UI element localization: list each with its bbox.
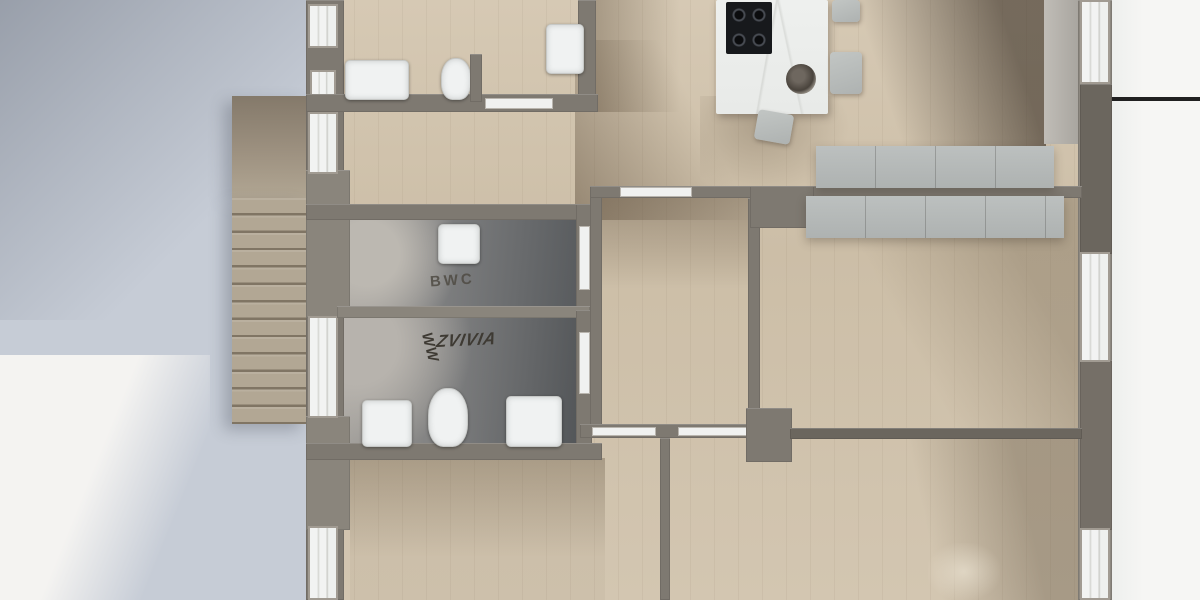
bathtub <box>345 60 409 100</box>
kitchen-counter-row <box>816 146 1054 188</box>
door-bedroom-bottom-left <box>592 427 656 436</box>
bar-stool-3 <box>754 109 795 145</box>
wall-bottom-thin <box>790 428 1082 439</box>
tall-cabinet-column <box>1044 0 1078 144</box>
laundry-scribble-main: ZVIVIA <box>435 329 499 353</box>
window-right-1 <box>1080 0 1110 84</box>
wall-pier-left-1 <box>306 170 350 318</box>
wall-pier-right-1 <box>1080 84 1112 254</box>
wall-guest-wc-top <box>306 204 598 220</box>
washbasin-guest-wc <box>438 224 480 264</box>
guest-wc-label: BWC <box>429 270 475 290</box>
wall-center-room-left <box>590 186 602 438</box>
sideboard <box>806 196 1064 238</box>
bar-stool-1 <box>832 0 860 22</box>
stairs-landing <box>232 96 308 198</box>
toilet-top <box>441 58 471 100</box>
leader-line <box>1112 97 1200 101</box>
door-bathroom-top <box>485 98 553 109</box>
window-right-2 <box>1080 252 1110 362</box>
background-right <box>1106 0 1200 600</box>
wall-center-room-right <box>748 198 760 424</box>
decor-bowl <box>786 64 816 94</box>
bar-stool-2 <box>830 52 862 94</box>
partition-bathroom-top <box>470 54 482 102</box>
window-right-3 <box>1080 528 1110 600</box>
washbasin-lower-1 <box>362 400 412 447</box>
toilet-lower <box>428 388 468 447</box>
window-left-5 <box>308 526 338 600</box>
window-left-4 <box>308 316 338 418</box>
window-left-3 <box>308 112 338 174</box>
washbasin-lower-2 <box>506 396 562 447</box>
door-center-room <box>620 187 692 197</box>
stairs-steps <box>232 198 308 424</box>
wall-pier-left-2 <box>306 416 350 530</box>
door-bathroom-lower <box>579 332 590 394</box>
background-bottom-left <box>0 355 210 600</box>
shower-basin <box>546 24 584 74</box>
wall-block-bottom <box>746 408 792 462</box>
wall-pier-right-2 <box>1080 360 1112 530</box>
door-guest-wc <box>579 226 590 290</box>
window-left-1 <box>308 4 338 48</box>
door-bedroom-bottom-center <box>678 427 748 436</box>
wall-bathrooms-divider <box>337 306 590 318</box>
cooktop <box>726 2 772 54</box>
wall-block-kitchen <box>750 186 814 228</box>
wall-bottom-rooms-divider <box>660 438 670 600</box>
floorplan-canvas: BWC WW ZVIVIA <box>0 0 1200 600</box>
